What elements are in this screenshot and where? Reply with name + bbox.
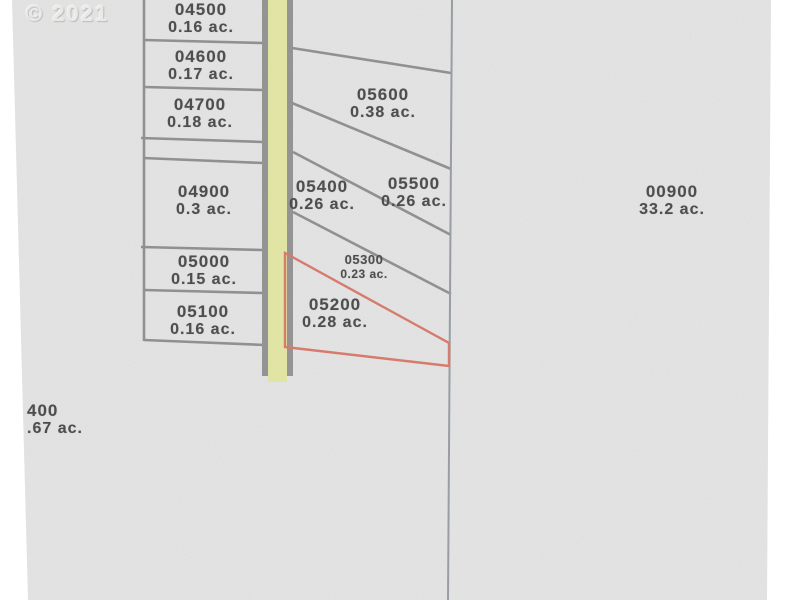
parcel-label-00900: 00900 33.2 ac.	[639, 183, 705, 218]
lot-number: 00900	[639, 183, 705, 200]
lot-number: 04500	[168, 1, 234, 18]
lot-acreage: 0.3 ac.	[176, 202, 232, 218]
parcel-labels: 04500 0.16 ac. 04600 0.17 ac. 04700 0.18…	[0, 0, 800, 600]
parcel-label-04500: 04500 0.16 ac.	[168, 1, 234, 36]
lot-number: 05300	[340, 253, 387, 266]
parcel-label-05100: 05100 0.16 ac.	[170, 303, 236, 338]
parcel-label-05400: 05400 0.26 ac.	[289, 178, 355, 213]
lot-number: 04700	[167, 96, 233, 113]
lot-number: 05500	[381, 175, 447, 192]
parcel-label-04900: 04900 0.3 ac.	[176, 183, 232, 218]
lot-acreage: 33.2 ac.	[639, 202, 705, 218]
parcel-label-clipped-400: 400 .67 ac.	[27, 402, 83, 437]
lot-number: 05600	[350, 86, 416, 103]
lot-number: 400	[27, 402, 83, 419]
lot-number: 05000	[171, 253, 237, 270]
lot-number: 04900	[176, 183, 232, 200]
lot-acreage: 0.23 ac.	[340, 268, 387, 280]
parcel-label-04600: 04600 0.17 ac.	[168, 48, 234, 83]
lot-acreage: 0.17 ac.	[168, 67, 234, 83]
lot-number: 05200	[302, 296, 368, 313]
lot-acreage: 0.26 ac.	[289, 197, 355, 213]
lot-number: 05100	[170, 303, 236, 320]
parcel-label-05200: 05200 0.28 ac.	[302, 296, 368, 331]
lot-acreage: 0.38 ac.	[350, 105, 416, 121]
parcel-label-05500: 05500 0.26 ac.	[381, 175, 447, 210]
lot-acreage: 0.28 ac.	[302, 315, 368, 331]
lot-number: 05400	[289, 178, 355, 195]
lot-acreage: 0.16 ac.	[170, 322, 236, 338]
lot-number: 04600	[168, 48, 234, 65]
parcel-label-05000: 05000 0.15 ac.	[171, 253, 237, 288]
lot-acreage: .67 ac.	[27, 421, 83, 437]
copyright-watermark: © 2021	[26, 1, 109, 27]
plat-map-scan: 04500 0.16 ac. 04600 0.17 ac. 04700 0.18…	[0, 0, 800, 600]
lot-acreage: 0.26 ac.	[381, 194, 447, 210]
lot-acreage: 0.15 ac.	[171, 272, 237, 288]
lot-acreage: 0.18 ac.	[167, 115, 233, 131]
parcel-label-05300: 05300 0.23 ac.	[340, 253, 387, 280]
parcel-label-04700: 04700 0.18 ac.	[167, 96, 233, 131]
parcel-label-05600: 05600 0.38 ac.	[350, 86, 416, 121]
lot-acreage: 0.16 ac.	[168, 20, 234, 36]
